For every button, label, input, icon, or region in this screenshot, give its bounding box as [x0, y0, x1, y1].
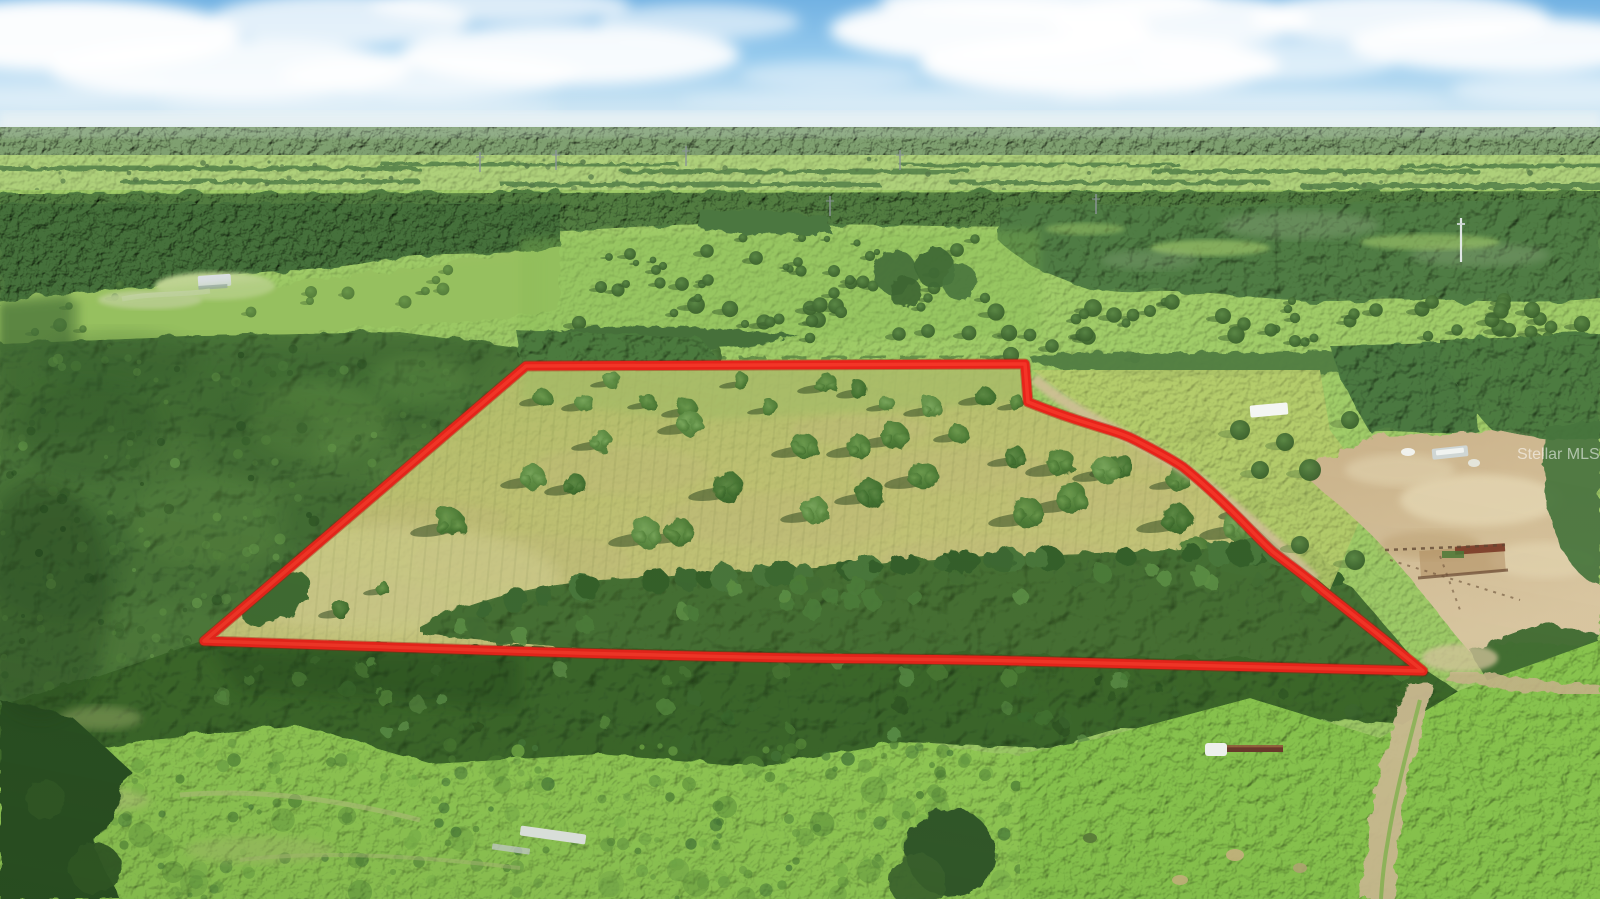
svg-text:Stellar MLS: Stellar MLS — [1517, 446, 1600, 463]
